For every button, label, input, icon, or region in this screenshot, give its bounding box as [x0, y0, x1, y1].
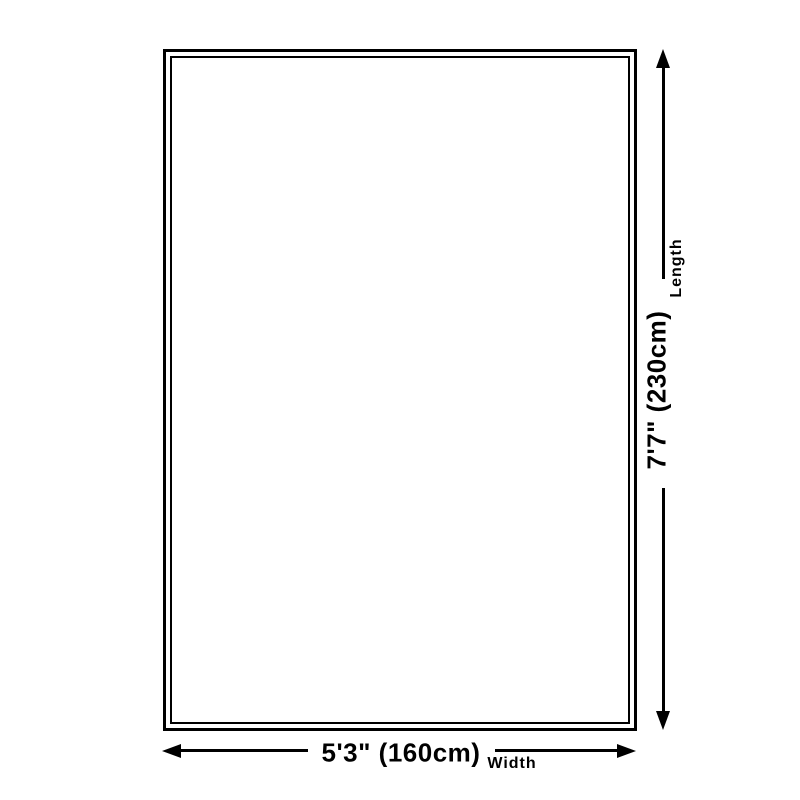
- arrow-down-icon: [656, 711, 670, 730]
- length-axis-label: Length: [668, 238, 686, 297]
- length-dimension-line-bottom: [662, 488, 665, 712]
- width-dimension-line-left: [180, 749, 308, 752]
- arrow-right-icon: [617, 744, 636, 758]
- arrow-left-icon: [162, 744, 181, 758]
- rug-size-diagram: Length 7'7" (230cm) 5'3" (160cm) Width: [0, 0, 800, 800]
- length-value-label: 7'7" (230cm): [642, 311, 673, 470]
- width-dimension-line-right: [495, 749, 617, 752]
- rug-inner-outline: [170, 56, 630, 724]
- length-dimension-line-top: [662, 64, 665, 279]
- width-axis-label: Width: [487, 755, 536, 773]
- width-value-label: 5'3" (160cm): [322, 738, 481, 769]
- rug-outline: [163, 49, 637, 731]
